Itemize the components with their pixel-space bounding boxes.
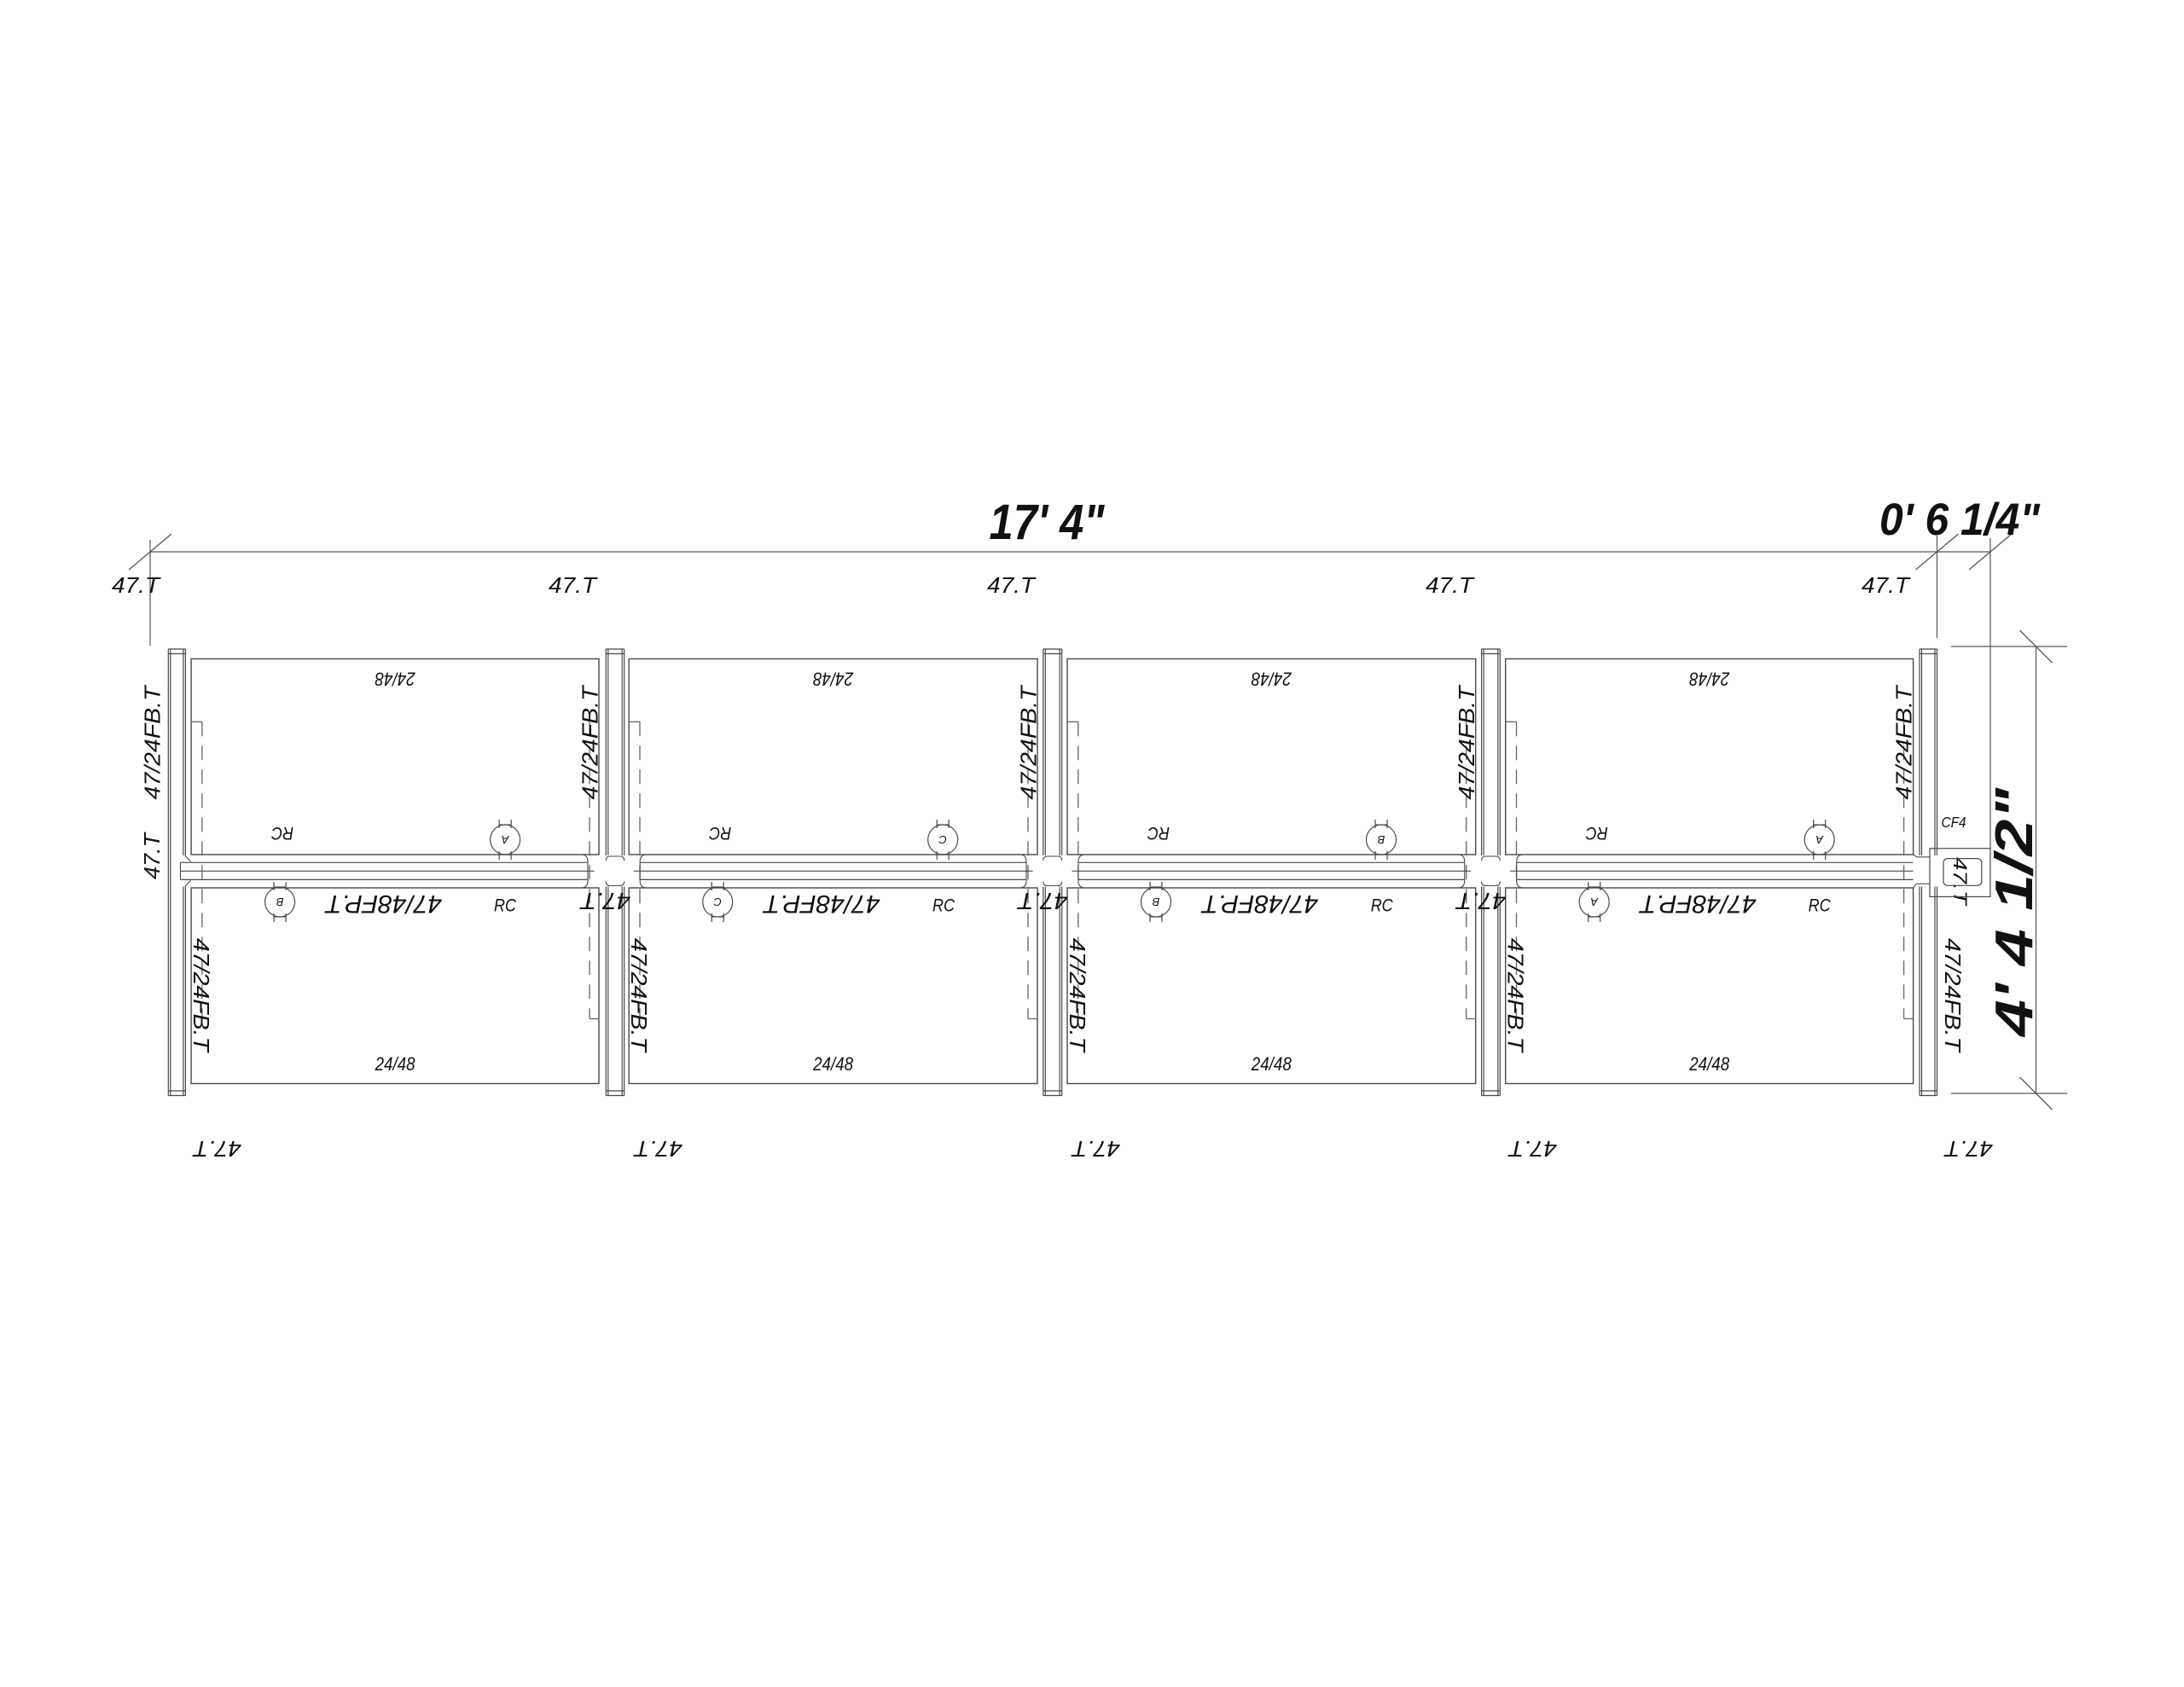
svg-text:47.T: 47.T — [1071, 1136, 1120, 1162]
svg-text:C: C — [938, 833, 947, 846]
svg-text:0' 6 1/4": 0' 6 1/4" — [1879, 495, 2041, 545]
svg-text:47.T: 47.T — [987, 572, 1037, 598]
svg-text:47.T: 47.T — [1426, 572, 1475, 598]
svg-text:24/48: 24/48 — [1251, 668, 1292, 689]
svg-text:47/24FB.T: 47/24FB.T — [626, 938, 652, 1053]
svg-text:B: B — [276, 896, 283, 908]
svg-text:RC: RC — [1371, 896, 1394, 916]
svg-text:RC: RC — [932, 896, 955, 916]
svg-text:47.T: 47.T — [1862, 572, 1911, 598]
svg-text:47.T: 47.T — [1949, 857, 1971, 907]
svg-text:47/24FB.T: 47/24FB.T — [140, 684, 166, 799]
svg-text:CF4: CF4 — [1942, 814, 1966, 831]
svg-text:47/48FP.T: 47/48FP.T — [323, 890, 442, 918]
svg-text:47/24FB.T: 47/24FB.T — [1454, 684, 1479, 799]
svg-text:47.T: 47.T — [549, 572, 598, 598]
svg-text:47.T: 47.T — [579, 888, 630, 914]
svg-text:RC: RC — [494, 896, 517, 916]
svg-text:RC: RC — [1809, 896, 1832, 916]
svg-text:47/24FB.T: 47/24FB.T — [1503, 938, 1529, 1053]
svg-text:RC: RC — [1147, 823, 1170, 843]
svg-text:47.T: 47.T — [139, 832, 165, 879]
svg-text:B: B — [1377, 833, 1385, 846]
svg-text:24/48: 24/48 — [375, 668, 415, 689]
svg-text:24/48: 24/48 — [1688, 1053, 1729, 1075]
svg-text:47/24FB.T: 47/24FB.T — [189, 938, 214, 1053]
svg-text:47/24FB.T: 47/24FB.T — [1016, 684, 1042, 799]
svg-text:17' 4": 17' 4" — [990, 495, 1106, 550]
svg-text:47/48FP.T: 47/48FP.T — [1200, 890, 1319, 918]
svg-text:A: A — [1590, 896, 1599, 908]
svg-text:A: A — [502, 833, 510, 846]
svg-text:47/24FB.T: 47/24FB.T — [1891, 684, 1917, 799]
svg-text:RC: RC — [708, 823, 731, 843]
svg-text:24/48: 24/48 — [812, 668, 853, 689]
svg-text:47.T: 47.T — [1943, 1136, 1993, 1162]
svg-text:4' 4 1/2": 4' 4 1/2" — [1985, 786, 2044, 1038]
svg-text:24/48: 24/48 — [812, 1053, 853, 1075]
svg-text:RC: RC — [270, 823, 293, 843]
svg-text:47/48FP.T: 47/48FP.T — [1638, 890, 1757, 918]
svg-text:47.T: 47.T — [192, 1136, 241, 1162]
svg-text:47/48FP.T: 47/48FP.T — [762, 890, 880, 918]
svg-text:47/24FB.T: 47/24FB.T — [1065, 938, 1090, 1053]
svg-text:A: A — [1815, 833, 1824, 846]
svg-text:C: C — [713, 896, 722, 908]
svg-text:24/48: 24/48 — [375, 1053, 415, 1075]
svg-text:24/48: 24/48 — [1251, 1053, 1292, 1075]
svg-text:47.T: 47.T — [1507, 1136, 1557, 1162]
svg-text:B: B — [1152, 896, 1159, 908]
svg-text:47/24FB.T: 47/24FB.T — [1940, 938, 1966, 1053]
svg-text:47.T: 47.T — [1017, 888, 1068, 914]
svg-text:47.T: 47.T — [1455, 888, 1506, 914]
svg-text:47.T: 47.T — [633, 1136, 682, 1162]
svg-text:47.T: 47.T — [112, 572, 161, 598]
svg-text:24/48: 24/48 — [1689, 668, 1730, 689]
svg-text:47/24FB.T: 47/24FB.T — [578, 684, 603, 799]
svg-text:RC: RC — [1585, 823, 1608, 843]
